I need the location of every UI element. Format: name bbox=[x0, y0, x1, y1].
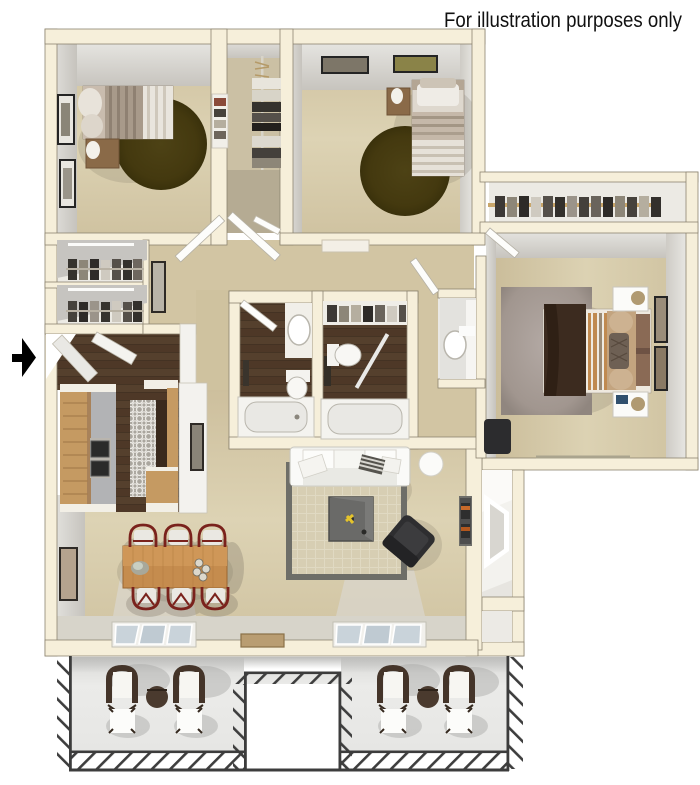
svg-text:For illustration purposes only: For illustration purposes only bbox=[444, 9, 682, 32]
